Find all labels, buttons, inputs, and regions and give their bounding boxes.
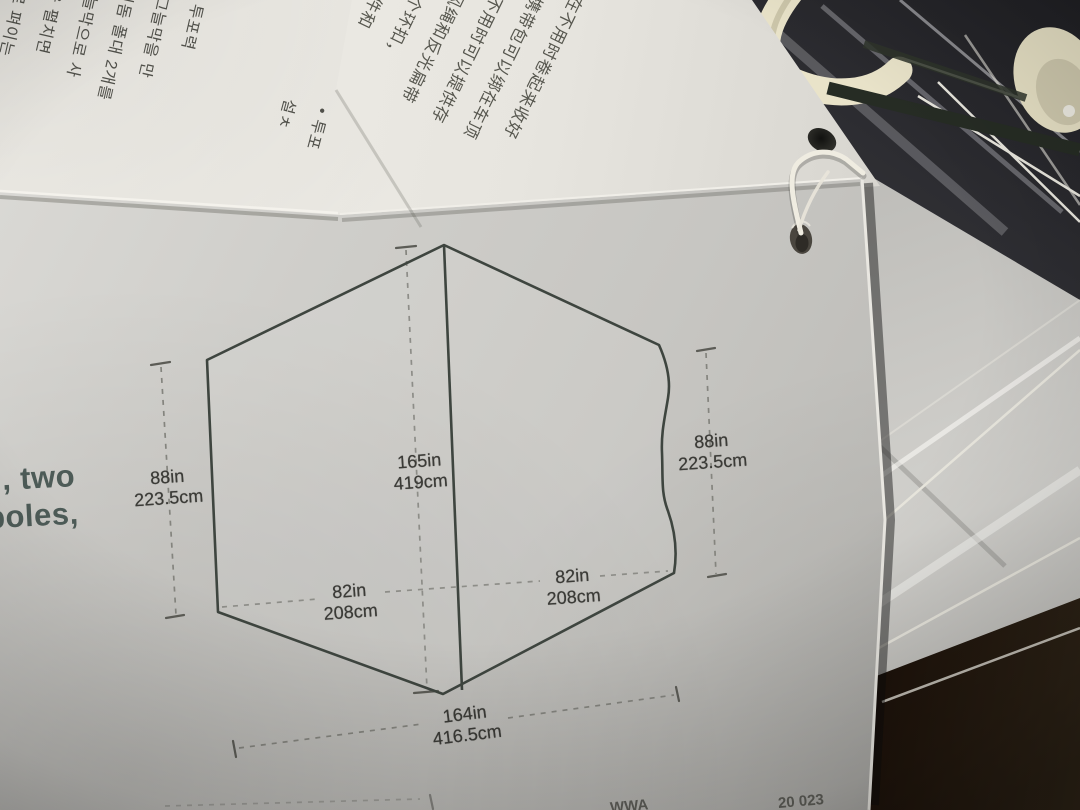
bottom-fragment-left: WWA [609, 796, 649, 810]
photo-of-tent-manual: 或在不用时卷起来收好 建时携带包可以绑在车顶 架上，不用时可以提供存 • 反光防… [0, 0, 1080, 810]
dimension-label-left-height: 88in 223.5cm [102, 463, 235, 514]
paper-punch-hole [804, 123, 841, 157]
dimension-label-ridge: 165in 419cm [354, 447, 487, 498]
dimension-label-left-width: 82in 208cm [284, 577, 417, 628]
dimension-label-right-height: 88in 223.5cm [646, 427, 779, 478]
cutoff-dashed-line [165, 799, 420, 806]
bottom-fragment-right: 20 023 [777, 791, 824, 810]
margin-text-line2: poles, [0, 496, 79, 537]
dimension-label-total-width: 164in 416.5cm [399, 696, 533, 754]
margin-text-line1: , two [1, 458, 76, 498]
dimension-label-right-width: 82in 208cm [507, 562, 640, 613]
